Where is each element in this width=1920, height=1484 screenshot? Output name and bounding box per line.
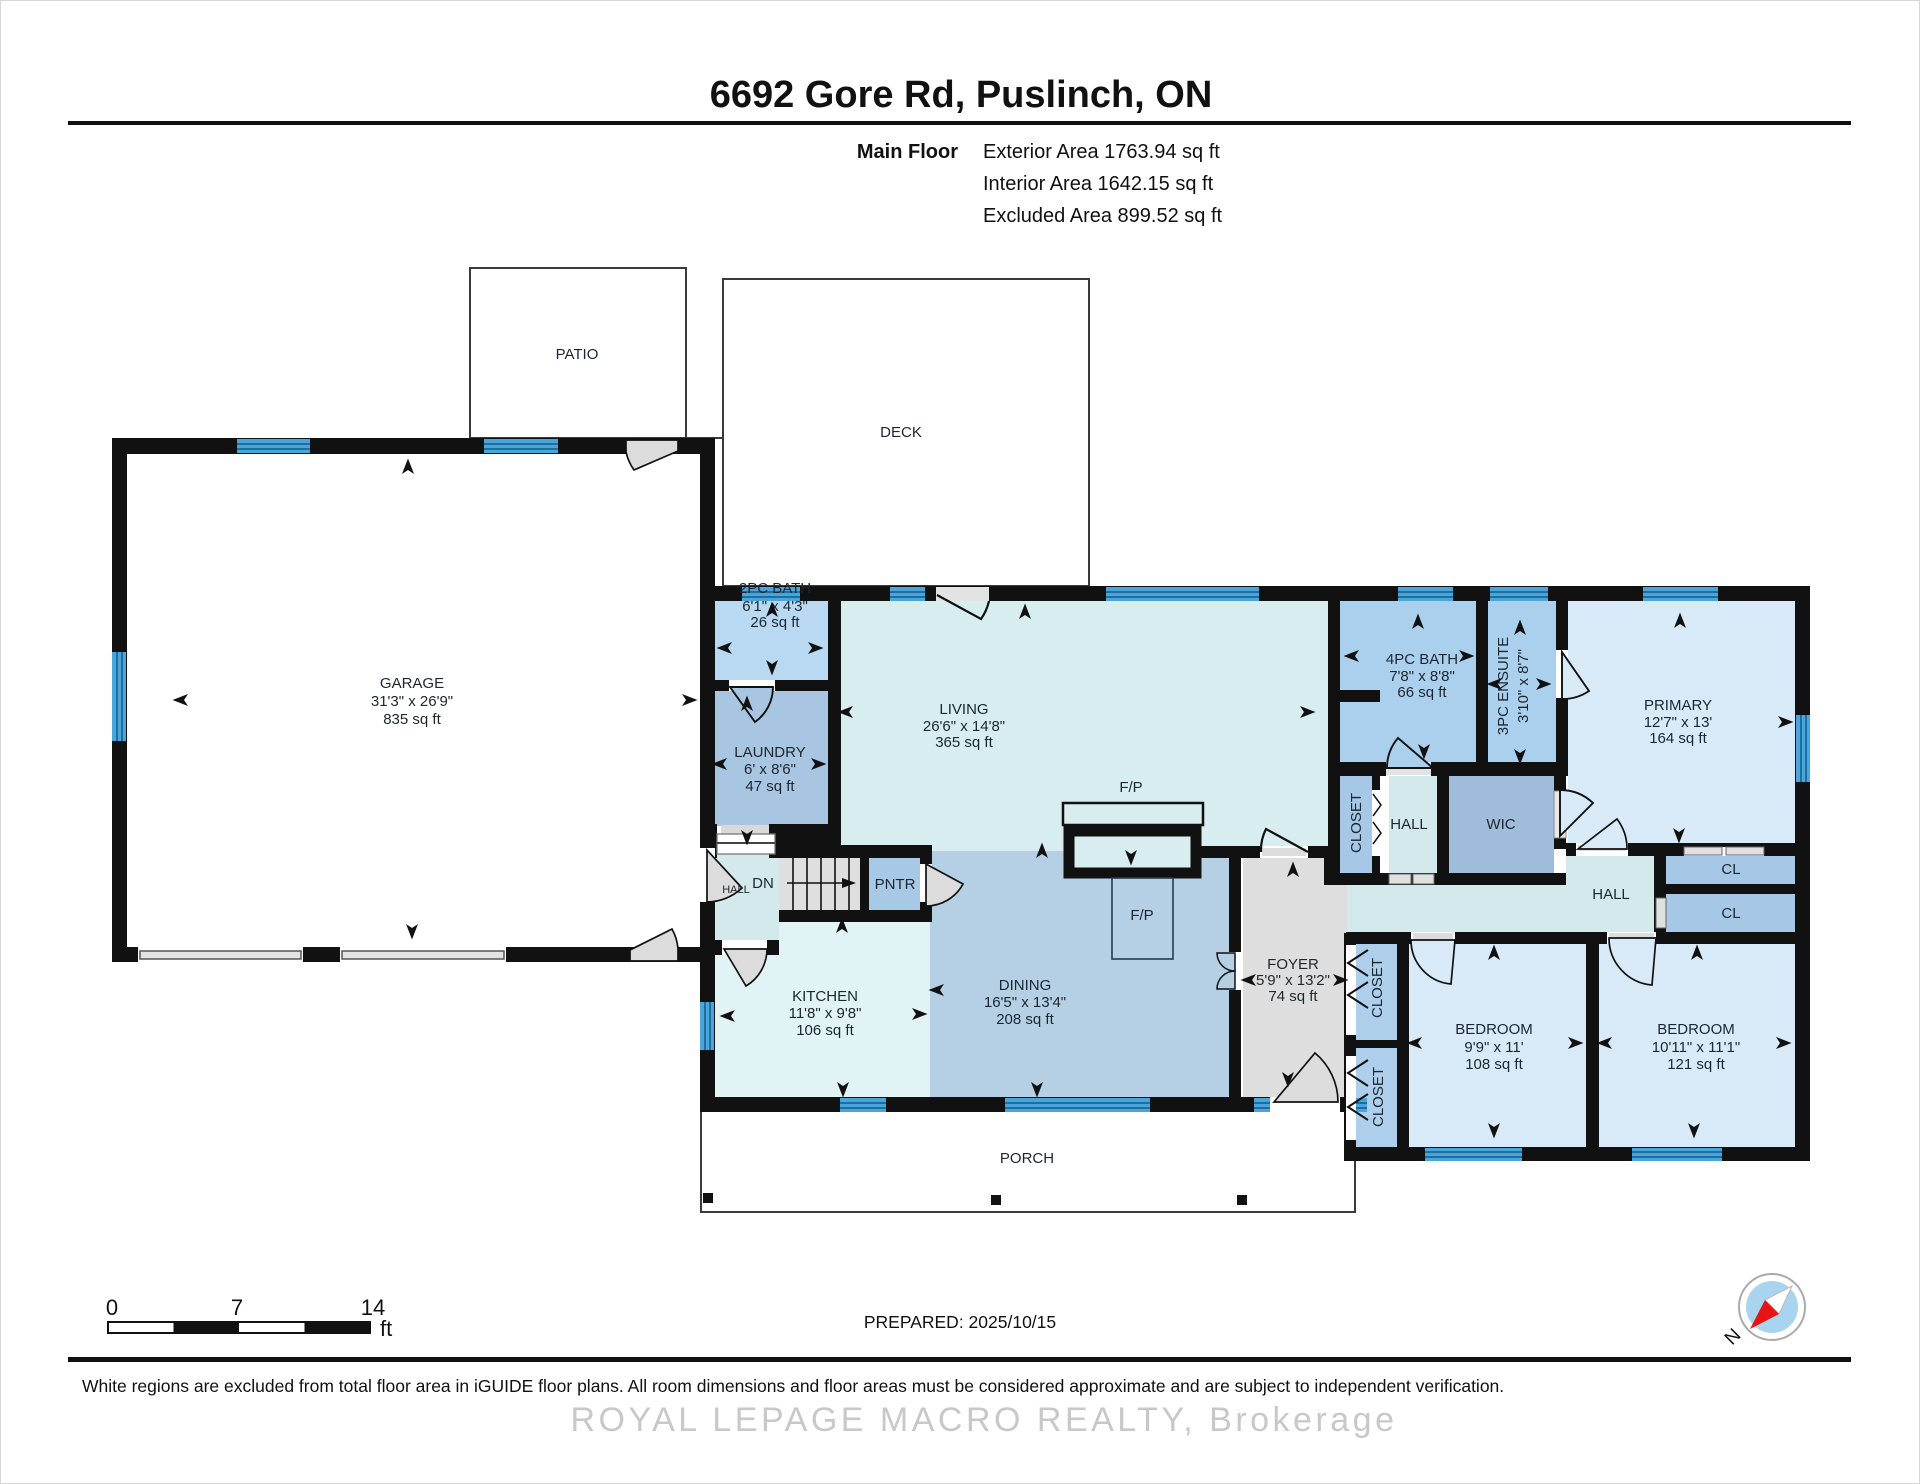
svg-text:11'8" x 9'8": 11'8" x 9'8" [789, 1005, 862, 1022]
svg-text:47 sq ft: 47 sq ft [745, 778, 795, 795]
svg-text:ft: ft [380, 1316, 392, 1341]
svg-text:208 sq ft: 208 sq ft [996, 1011, 1054, 1028]
svg-text:ROYAL LEPAGE MACRO REALTY, Bro: ROYAL LEPAGE MACRO REALTY, Brokerage [570, 1401, 1397, 1439]
svg-text:Interior Area 1642.15 sq ft: Interior Area 1642.15 sq ft [983, 173, 1214, 195]
svg-text:121 sq ft: 121 sq ft [1667, 1056, 1725, 1073]
svg-text:PORCH: PORCH [1000, 1150, 1054, 1167]
svg-text:365 sq ft: 365 sq ft [935, 734, 993, 751]
svg-text:5'9" x 13'2": 5'9" x 13'2" [1256, 972, 1330, 989]
svg-text:FOYER: FOYER [1267, 956, 1319, 973]
svg-text:PREPARED: 2025/10/15: PREPARED: 2025/10/15 [864, 1312, 1056, 1332]
svg-text:Exterior Area 1763.94 sq ft: Exterior Area 1763.94 sq ft [983, 141, 1220, 163]
svg-text:12'7" x 13': 12'7" x 13' [1644, 714, 1713, 731]
svg-text:CLOSET: CLOSET [1348, 793, 1365, 853]
svg-text:4PC BATH: 4PC BATH [1386, 651, 1458, 668]
svg-text:CL: CL [1721, 905, 1740, 922]
svg-text:26'6" x 14'8": 26'6" x 14'8" [923, 718, 1005, 735]
svg-text:BEDROOM: BEDROOM [1455, 1021, 1533, 1038]
svg-text:F/P: F/P [1119, 779, 1142, 796]
svg-text:CLOSET: CLOSET [1370, 1067, 1387, 1127]
svg-text:HALL: HALL [722, 884, 750, 896]
svg-text:PRIMARY: PRIMARY [1644, 697, 1712, 714]
svg-text:DN: DN [752, 875, 774, 892]
svg-text:KITCHEN: KITCHEN [792, 988, 858, 1005]
svg-text:WIC: WIC [1486, 816, 1515, 833]
svg-text:835 sq ft: 835 sq ft [383, 711, 441, 728]
svg-text:108 sq ft: 108 sq ft [1465, 1056, 1523, 1073]
svg-text:HALL: HALL [1390, 816, 1428, 833]
svg-text:Excluded Area 899.52 sq ft: Excluded Area 899.52 sq ft [983, 205, 1222, 227]
svg-text:6692 Gore Rd, Puslinch, ON: 6692 Gore Rd, Puslinch, ON [710, 74, 1213, 116]
svg-text:31'3" x 26'9": 31'3" x 26'9" [371, 693, 453, 710]
svg-text:16'5" x 13'4": 16'5" x 13'4" [984, 994, 1066, 1011]
svg-text:PNTR: PNTR [875, 876, 916, 893]
svg-text:164 sq ft: 164 sq ft [1649, 730, 1707, 747]
svg-text:9'9" x 11': 9'9" x 11' [1464, 1039, 1523, 1056]
svg-text:2PC BATH: 2PC BATH [739, 580, 811, 597]
svg-text:DECK: DECK [880, 424, 922, 441]
svg-text:LAUNDRY: LAUNDRY [734, 744, 805, 761]
svg-text:6' x 8'6": 6' x 8'6" [744, 761, 796, 778]
svg-text:CL: CL [1721, 861, 1740, 878]
svg-text:LIVING: LIVING [939, 701, 988, 718]
svg-text:White regions are excluded fro: White regions are excluded from total fl… [82, 1376, 1504, 1396]
svg-text:CLOSET: CLOSET [1369, 958, 1386, 1018]
svg-text:DINING: DINING [999, 977, 1052, 994]
svg-text:BEDROOM: BEDROOM [1657, 1021, 1735, 1038]
svg-text:10'11" x 11'1": 10'11" x 11'1" [1652, 1039, 1740, 1056]
svg-text:HALL: HALL [1592, 886, 1630, 903]
svg-text:106 sq ft: 106 sq ft [796, 1022, 854, 1039]
svg-text:0: 0 [106, 1295, 118, 1320]
svg-text:3'10" x 8'7": 3'10" x 8'7" [1515, 649, 1532, 723]
svg-text:7: 7 [231, 1295, 243, 1320]
svg-text:7'8" x 8'8": 7'8" x 8'8" [1389, 668, 1455, 685]
svg-text:74 sq ft: 74 sq ft [1268, 988, 1318, 1005]
svg-text:66 sq ft: 66 sq ft [1397, 684, 1447, 701]
svg-text:Main Floor: Main Floor [857, 141, 958, 163]
svg-text:F/P: F/P [1130, 907, 1153, 924]
svg-text:GARAGE: GARAGE [380, 675, 444, 692]
svg-text:PATIO: PATIO [556, 346, 599, 363]
svg-text:26 sq ft: 26 sq ft [750, 614, 800, 631]
